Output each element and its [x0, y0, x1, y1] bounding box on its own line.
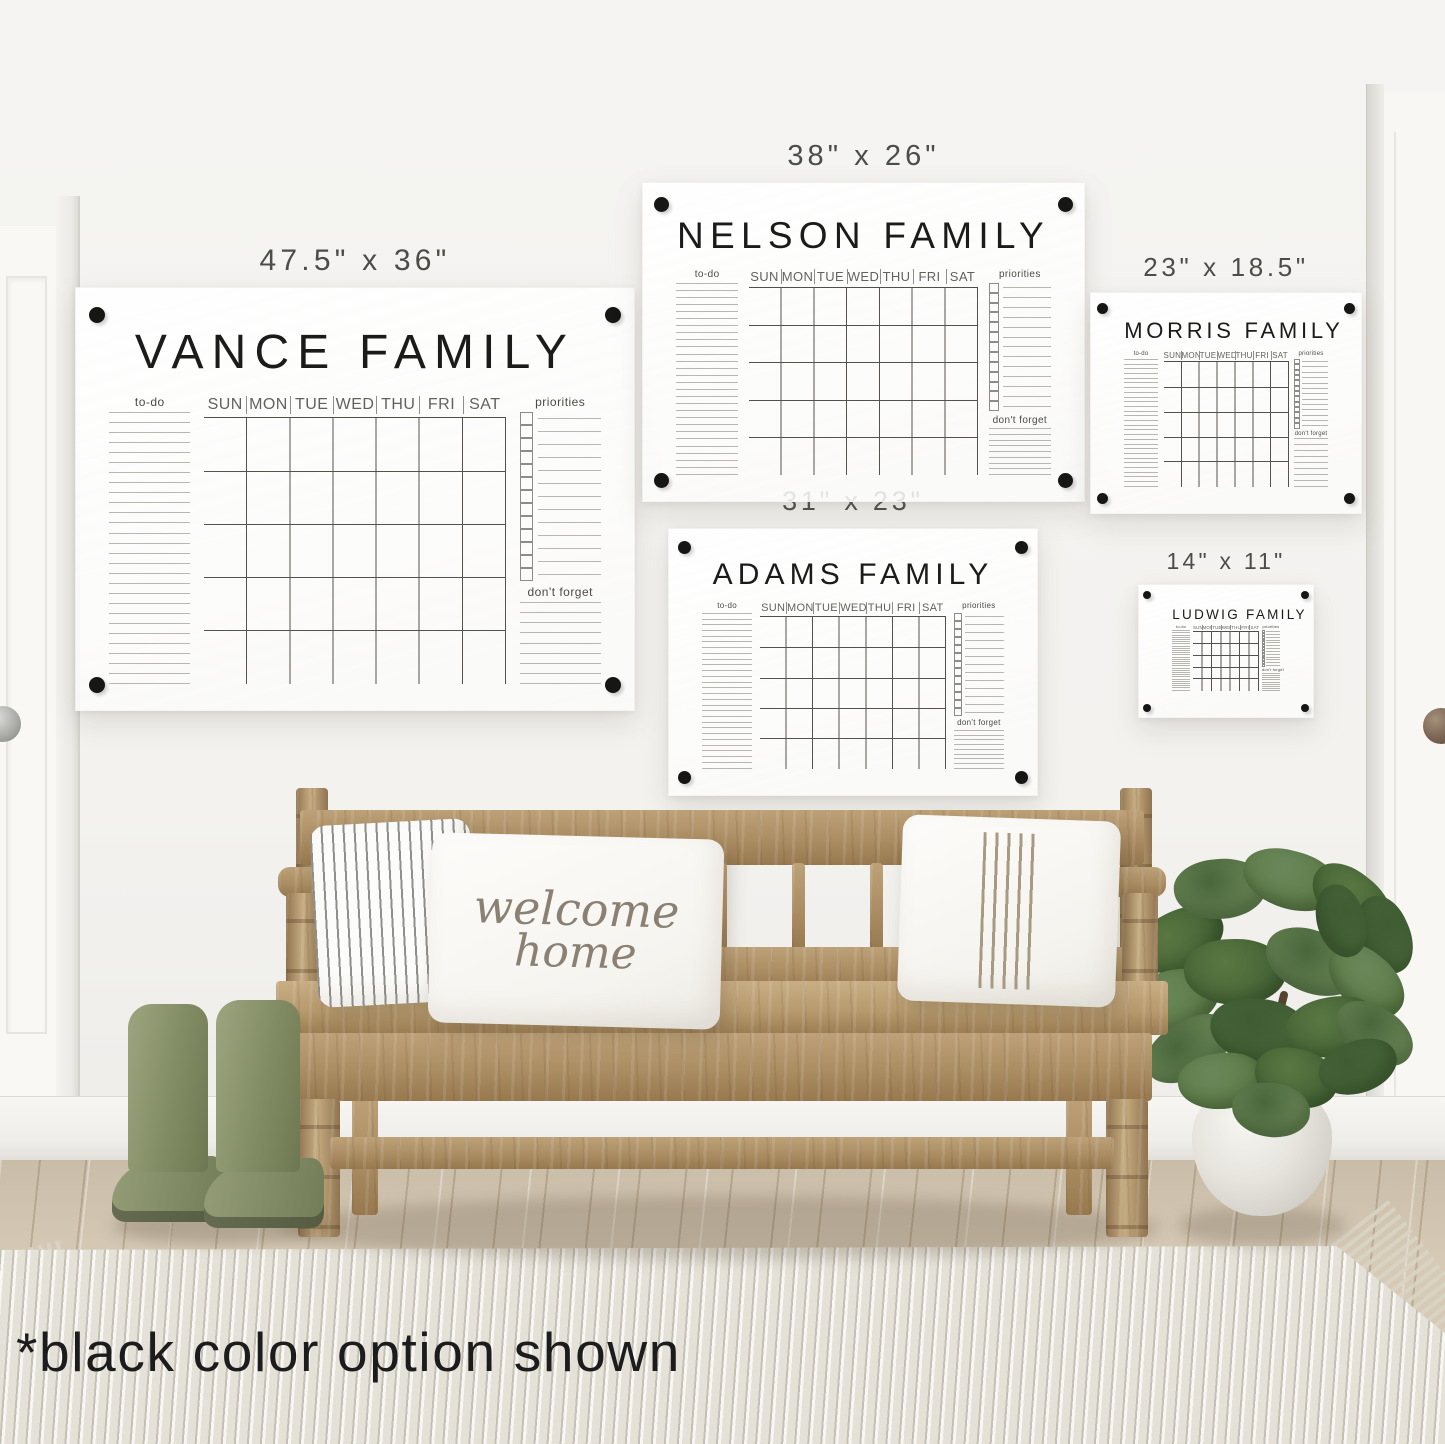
writing-line	[1124, 382, 1158, 383]
priority-row	[520, 477, 601, 490]
left-door-slab	[0, 226, 56, 1164]
writing-line	[1294, 480, 1328, 481]
day-header-row: SUNMONTUEWEDTHUFRISAT	[749, 269, 979, 288]
writing-line	[676, 368, 738, 369]
writing-line	[1003, 376, 1051, 377]
side-column: prioritiesdon't forget	[954, 602, 1004, 769]
priority-row	[954, 708, 1004, 716]
writing-line	[989, 468, 1051, 469]
writing-line	[676, 339, 738, 340]
day-label: THU	[1235, 351, 1253, 360]
priority-row	[520, 542, 601, 555]
writing-line	[702, 716, 752, 717]
writing-line	[702, 613, 752, 614]
writing-line	[1302, 388, 1328, 389]
mount-dot-icon	[1344, 303, 1355, 314]
writing-line	[1294, 474, 1328, 475]
writing-line	[702, 653, 752, 654]
writing-line	[1266, 648, 1280, 649]
writing-line	[1003, 366, 1051, 367]
checkbox-icon	[520, 555, 533, 568]
dont-forget-lines	[520, 602, 601, 684]
priority-row	[989, 382, 1051, 392]
writing-line	[1262, 688, 1280, 689]
checkbox-icon	[989, 332, 999, 342]
checkbox-icon	[954, 692, 962, 700]
writing-line	[1172, 679, 1190, 680]
writing-line	[954, 739, 1004, 740]
writing-line	[109, 452, 190, 453]
day-label: FRI	[913, 269, 946, 284]
writing-line	[1294, 456, 1328, 457]
day-label: SAT	[1249, 625, 1259, 630]
calendar-title: VANCE FAMILY	[109, 325, 601, 380]
writing-line	[676, 332, 738, 333]
priority-row	[989, 303, 1051, 313]
writing-line	[1266, 651, 1280, 652]
writing-line	[109, 593, 190, 594]
writing-line	[702, 636, 752, 637]
writing-line	[676, 346, 738, 347]
priority-row	[954, 637, 1004, 645]
checkbox-icon	[520, 490, 533, 503]
writing-line	[520, 663, 601, 664]
writing-line	[520, 643, 601, 644]
todo-column: to-do	[1172, 625, 1190, 691]
checkbox-icon	[954, 700, 962, 708]
priority-row	[954, 668, 1004, 676]
calendar-body: to-doSUNMONTUEWEDTHUFRISATprioritiesdon'…	[702, 602, 1004, 769]
day-label: MON	[1202, 625, 1212, 630]
size-label-ludwig: 14" x 11"	[1138, 548, 1314, 575]
calendar-nelson: NELSON FAMILYto-doSUNMONTUEWEDTHUFRISATp…	[642, 182, 1085, 502]
writing-line	[1266, 665, 1280, 666]
writing-line	[676, 361, 738, 362]
todo-label: to-do	[1172, 625, 1190, 629]
checkbox-icon	[989, 293, 999, 303]
checkbox-icon	[954, 708, 962, 716]
writing-line	[702, 630, 752, 631]
writing-line	[702, 768, 752, 769]
writing-line	[965, 656, 1004, 657]
pillow-striped-right	[897, 814, 1121, 1007]
writing-line	[538, 457, 601, 458]
mount-dot-icon	[678, 771, 691, 784]
writing-line	[954, 749, 1004, 750]
mount-dot-icon	[89, 677, 105, 693]
writing-line	[109, 623, 190, 624]
bench-spindle	[792, 863, 805, 951]
writing-line	[1172, 663, 1190, 664]
writing-line	[1172, 646, 1190, 647]
writing-line	[954, 735, 1004, 736]
writing-line	[1262, 679, 1280, 680]
writing-line	[1172, 683, 1190, 684]
day-label: TUE	[1199, 351, 1217, 360]
checkbox-icon	[989, 391, 999, 401]
writing-line	[989, 474, 1051, 475]
day-label: SAT	[919, 602, 946, 614]
writing-line	[1302, 372, 1328, 373]
writing-line	[1302, 404, 1328, 405]
writing-line	[1262, 684, 1280, 685]
checkbox-icon	[520, 477, 533, 490]
writing-line	[1266, 640, 1280, 641]
priorities-list	[1262, 630, 1280, 667]
priority-row	[989, 391, 1051, 401]
writing-line	[1124, 401, 1158, 402]
writing-line	[1302, 399, 1328, 400]
day-label: WED	[1221, 625, 1231, 630]
writing-line	[1302, 361, 1328, 362]
month-grid	[760, 617, 945, 769]
writing-line	[1294, 468, 1328, 469]
writing-line	[1124, 462, 1158, 463]
writing-line	[1302, 420, 1328, 421]
priority-row	[989, 401, 1051, 411]
checkbox-icon	[989, 362, 999, 372]
writing-line	[965, 624, 1004, 625]
writing-line	[989, 434, 1051, 435]
writing-line	[1124, 481, 1158, 482]
checkbox-icon	[954, 684, 962, 692]
writing-line	[109, 543, 190, 544]
dont-forget-lines	[989, 428, 1051, 475]
priority-row	[989, 332, 1051, 342]
writing-line	[1124, 411, 1158, 412]
writing-line	[676, 304, 738, 305]
writing-line	[676, 396, 738, 397]
writing-line	[989, 428, 1051, 429]
checkbox-icon	[954, 629, 962, 637]
day-label: SUN	[204, 396, 246, 414]
mount-dot-icon	[605, 307, 621, 323]
writing-line	[109, 522, 190, 523]
size-label-nelson: 38" x 26"	[642, 140, 1085, 173]
product-photo-scene: 47.5" x 36" 38" x 26" 23" x 18.5" 31" x …	[0, 0, 1445, 1444]
writing-line	[954, 763, 1004, 764]
writing-line	[702, 750, 752, 751]
priorities-label: priorities	[1294, 351, 1328, 358]
writing-line	[676, 382, 738, 383]
writing-line	[1003, 327, 1051, 328]
day-label: SUN	[749, 269, 781, 284]
priority-row	[954, 684, 1004, 692]
checkbox-icon	[520, 529, 533, 542]
day-label: TUE	[290, 396, 333, 414]
writing-line	[965, 648, 1004, 649]
writing-line	[109, 633, 190, 634]
writing-line	[954, 768, 1004, 769]
writing-line	[109, 492, 190, 493]
writing-line	[1124, 378, 1158, 379]
writing-line	[965, 616, 1004, 617]
writing-line	[676, 290, 738, 291]
calendar-ludwig: LUDWIG FAMILYto-doSUNMONTUEWEDTHUFRISATp…	[1138, 584, 1314, 718]
writing-line	[1302, 425, 1328, 426]
pillow-text: welcome home	[428, 832, 725, 1030]
writing-line	[520, 683, 601, 684]
writing-line	[676, 354, 738, 355]
writing-line	[109, 422, 190, 423]
day-label: FRI	[892, 602, 919, 614]
writing-line	[109, 472, 190, 473]
priority-row	[954, 645, 1004, 653]
mount-dot-icon	[1058, 473, 1073, 488]
writing-line	[1003, 406, 1051, 407]
writing-line	[1124, 458, 1158, 459]
writing-line	[520, 673, 601, 674]
writing-line	[538, 444, 601, 445]
rain-boots	[112, 996, 342, 1236]
writing-line	[702, 705, 752, 706]
writing-line	[1172, 637, 1190, 638]
mount-dot-icon	[1143, 704, 1151, 712]
mount-dot-icon	[1015, 541, 1028, 554]
priority-row	[989, 352, 1051, 362]
writing-line	[1124, 476, 1158, 477]
todo-lines	[109, 412, 190, 684]
priority-row	[520, 516, 601, 529]
todo-column: to-do	[702, 602, 752, 769]
writing-line	[538, 418, 601, 419]
writing-line	[1262, 682, 1280, 683]
writing-line	[676, 453, 738, 454]
writing-line	[109, 613, 190, 614]
writing-line	[1302, 409, 1328, 410]
writing-line	[1262, 677, 1280, 678]
writing-line	[1172, 639, 1190, 640]
todo-label: to-do	[1124, 351, 1158, 358]
writing-line	[1124, 429, 1158, 430]
checkbox-icon	[954, 613, 962, 621]
writing-line	[109, 553, 190, 554]
side-column: prioritiesdon't forget	[1262, 625, 1280, 691]
todo-label: to-do	[676, 269, 738, 280]
writing-line	[989, 457, 1051, 458]
writing-line	[109, 673, 190, 674]
writing-line	[1172, 668, 1190, 669]
writing-line	[1266, 634, 1280, 635]
writing-line	[702, 710, 752, 711]
month-grid	[1193, 632, 1259, 691]
priority-row	[520, 568, 601, 581]
writing-line	[1124, 420, 1158, 421]
writing-line	[1124, 453, 1158, 454]
pillow-welcome-home: welcome home	[428, 832, 725, 1030]
writing-line	[1294, 444, 1328, 445]
writing-line	[702, 624, 752, 625]
writing-line	[1124, 425, 1158, 426]
writing-line	[1003, 346, 1051, 347]
writing-line	[989, 451, 1051, 452]
writing-line	[1003, 337, 1051, 338]
month-grid-column: SUNMONTUEWEDTHUFRISAT	[760, 602, 945, 769]
dont-forget-label: don't forget	[1294, 431, 1328, 438]
writing-line	[109, 432, 190, 433]
writing-line	[520, 622, 601, 623]
month-grid-column: SUNMONTUEWEDTHUFRISAT	[1193, 625, 1259, 691]
priorities-list	[520, 412, 601, 581]
writing-line	[109, 573, 190, 574]
writing-line	[1124, 448, 1158, 449]
writing-line	[965, 672, 1004, 673]
writing-line	[1003, 396, 1051, 397]
checkbox-icon	[989, 352, 999, 362]
priorities-list	[1294, 359, 1328, 429]
dont-forget-lines	[954, 730, 1004, 769]
side-column: prioritiesdon't forget	[1294, 351, 1328, 487]
writing-line	[1302, 415, 1328, 416]
writing-line	[1124, 444, 1158, 445]
mount-dot-icon	[654, 197, 669, 212]
priority-row	[989, 372, 1051, 382]
priority-row	[520, 425, 601, 438]
mount-dot-icon	[1301, 704, 1309, 712]
checkbox-icon	[520, 464, 533, 477]
priority-row	[520, 438, 601, 451]
calendar-body: to-doSUNMONTUEWEDTHUFRISATprioritiesdon'…	[1172, 625, 1280, 691]
writing-line	[109, 533, 190, 534]
checkbox-icon	[520, 425, 533, 438]
writing-line	[1124, 439, 1158, 440]
day-label: THU	[880, 269, 913, 284]
writing-line	[702, 727, 752, 728]
boot-shaft	[128, 1004, 208, 1172]
checkbox-icon	[989, 342, 999, 352]
priority-row	[954, 692, 1004, 700]
writing-line	[1172, 676, 1190, 677]
day-label: MON	[246, 396, 289, 414]
writing-line	[702, 664, 752, 665]
writing-line	[1003, 386, 1051, 387]
writing-line	[1266, 657, 1280, 658]
writing-line	[1172, 654, 1190, 655]
checkbox-icon	[989, 372, 999, 382]
priority-row	[989, 312, 1051, 322]
writing-line	[965, 680, 1004, 681]
writing-line	[1302, 383, 1328, 384]
writing-line	[676, 474, 738, 475]
writing-line	[1124, 373, 1158, 374]
writing-line	[676, 410, 738, 411]
day-label: FRI	[1253, 351, 1271, 360]
day-label: SAT	[946, 269, 979, 284]
day-header-row: SUNMONTUEWEDTHUFRISAT	[204, 396, 506, 419]
mount-dot-icon	[605, 677, 621, 693]
writing-line	[989, 440, 1051, 441]
writing-line	[702, 739, 752, 740]
side-column: prioritiesdon't forget	[989, 269, 1051, 475]
writing-line	[1266, 659, 1280, 660]
writing-line	[1172, 652, 1190, 653]
checkbox-icon	[520, 516, 533, 529]
writing-line	[954, 758, 1004, 759]
checkbox-icon	[954, 637, 962, 645]
dont-forget-lines	[1294, 438, 1328, 487]
priorities-label: priorities	[1262, 625, 1280, 629]
writing-line	[702, 687, 752, 688]
writing-line	[538, 574, 601, 575]
writing-line	[676, 311, 738, 312]
month-grid	[749, 288, 979, 475]
todo-column: to-do	[1124, 351, 1158, 487]
day-label: MON	[786, 602, 813, 614]
priority-row	[954, 621, 1004, 629]
writing-line	[1262, 686, 1280, 687]
writing-line	[109, 653, 190, 654]
checkbox-icon	[989, 382, 999, 392]
priority-row	[520, 490, 601, 503]
writing-line	[1294, 438, 1328, 439]
writing-line	[1172, 648, 1190, 649]
writing-line	[989, 463, 1051, 464]
priority-row	[520, 529, 601, 542]
mount-dot-icon	[1097, 493, 1108, 504]
checkbox-icon	[954, 621, 962, 629]
writing-line	[109, 663, 190, 664]
calendar-title: NELSON FAMILY	[676, 215, 1051, 257]
writing-line	[702, 762, 752, 763]
writing-line	[676, 424, 738, 425]
day-label: WED	[847, 269, 880, 284]
writing-line	[1172, 670, 1190, 671]
writing-line	[1124, 434, 1158, 435]
priority-row	[989, 283, 1051, 293]
writing-line	[1124, 467, 1158, 468]
writing-line	[702, 699, 752, 700]
checkbox-icon	[520, 451, 533, 464]
writing-line	[520, 602, 601, 603]
writing-line	[109, 603, 190, 604]
priority-row	[520, 451, 601, 464]
boot-shaft	[216, 1000, 300, 1172]
writing-line	[1124, 415, 1158, 416]
checkbox-icon	[989, 322, 999, 332]
priority-row	[989, 322, 1051, 332]
dont-forget-label: don't forget	[954, 719, 1004, 728]
todo-label: to-do	[109, 396, 190, 409]
writing-line	[702, 693, 752, 694]
writing-line	[109, 482, 190, 483]
month-grid-column: SUNMONTUEWEDTHUFRISAT	[1164, 351, 1289, 487]
writing-line	[1302, 366, 1328, 367]
writing-line	[1294, 462, 1328, 463]
month-grid-column: SUNMONTUEWEDTHUFRISAT	[204, 396, 506, 684]
writing-line	[520, 653, 601, 654]
day-label: FRI	[1240, 625, 1250, 630]
writing-line	[1124, 368, 1158, 369]
day-header-row: SUNMONTUEWEDTHUFRISAT	[1164, 351, 1289, 363]
writing-line	[1003, 356, 1051, 357]
writing-line	[1172, 630, 1190, 631]
todo-column: to-do	[676, 269, 738, 475]
day-label: SUN	[1193, 625, 1202, 630]
day-label: THU	[376, 396, 419, 414]
writing-line	[702, 733, 752, 734]
writing-line	[1266, 645, 1280, 646]
checkbox-icon	[520, 542, 533, 555]
writing-line	[538, 496, 601, 497]
writing-line	[1003, 287, 1051, 288]
day-label: TUE	[814, 269, 847, 284]
writing-line	[965, 632, 1004, 633]
writing-line	[1172, 672, 1190, 673]
todo-lines	[702, 613, 752, 769]
writing-line	[676, 446, 738, 447]
priority-row	[520, 464, 601, 477]
writing-line	[676, 325, 738, 326]
